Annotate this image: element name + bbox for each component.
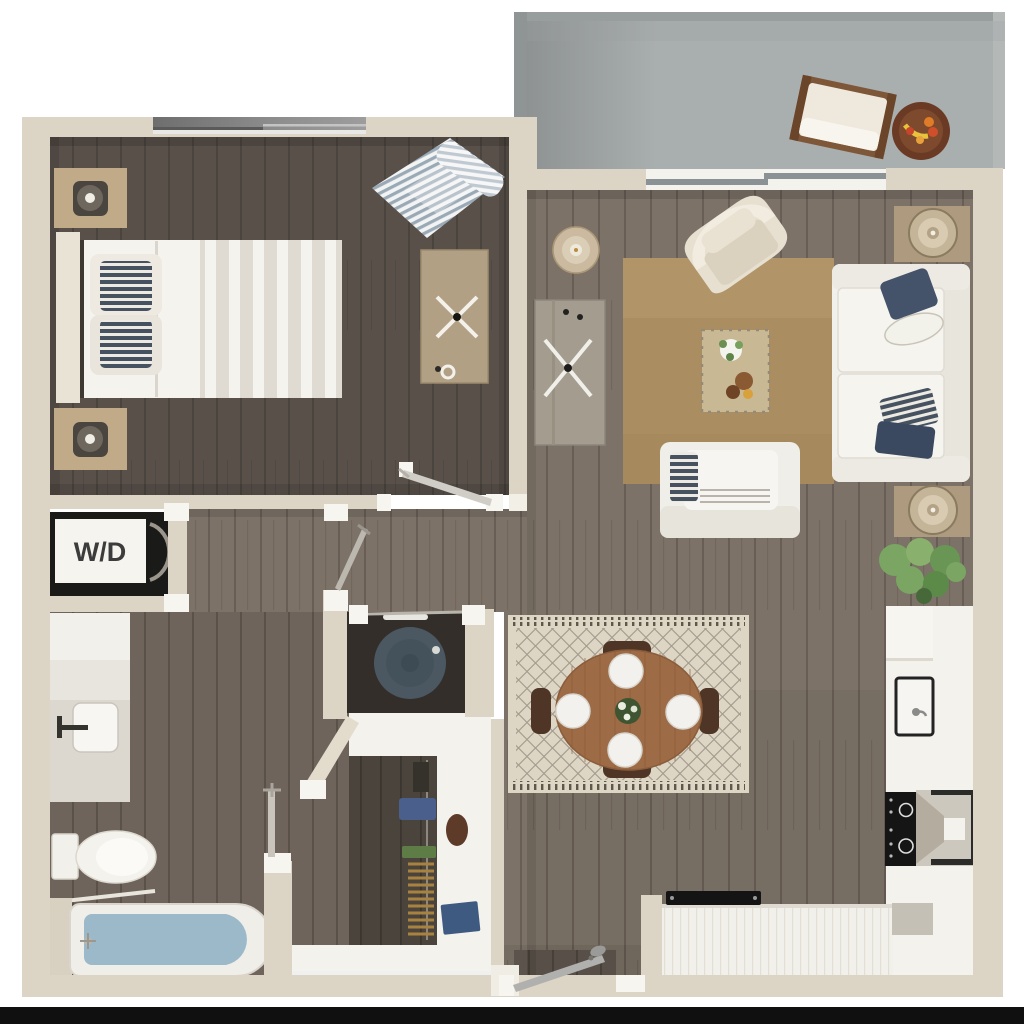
svg-text:W/D: W/D: [74, 537, 126, 567]
